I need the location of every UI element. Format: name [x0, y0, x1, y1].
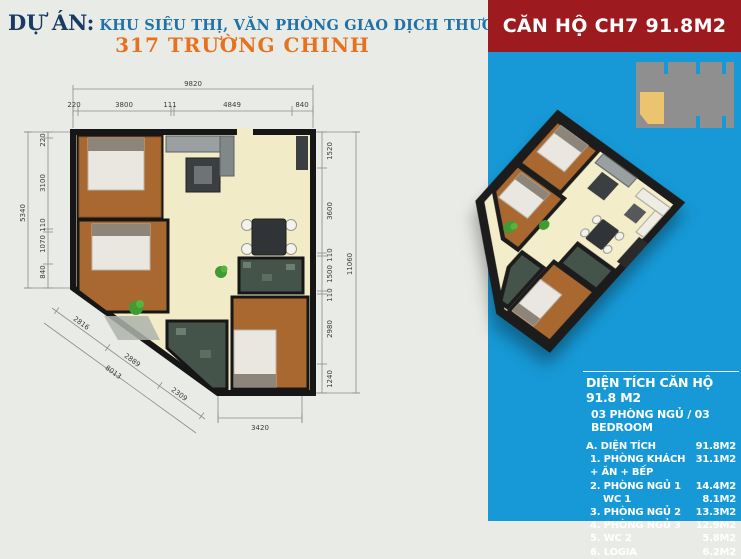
bedroom-2: [78, 220, 168, 312]
svg-text:4849: 4849: [223, 101, 241, 109]
svg-text:1500: 1500: [326, 265, 334, 283]
dim-left-overall: 5340: [19, 204, 27, 222]
table-row: 2. PHÒNG NGỦ 1 14.4M2: [586, 480, 736, 493]
svg-text:3100: 3100: [39, 174, 47, 192]
svg-text:3600: 3600: [326, 202, 334, 220]
dim-right-overall: 11060: [346, 253, 354, 275]
unit-title: CĂN HỘ CH7 91.8M2: [503, 15, 727, 37]
svg-text:2980: 2980: [326, 320, 334, 338]
bedroom-3: [232, 297, 308, 389]
svg-text:220: 220: [67, 101, 80, 109]
svg-text:1240: 1240: [326, 370, 334, 388]
table-row: 1. PHÒNG KHÁCH + ĂN + BẾP 31.1M2: [586, 453, 736, 479]
bedroom-1: [78, 136, 162, 218]
svg-text:110: 110: [326, 288, 334, 301]
svg-text:840: 840: [295, 101, 308, 109]
svg-text:1070: 1070: [39, 235, 47, 253]
area-table: DIỆN TÍCH CĂN HỘ 91.8 M2 03 PHÒNG NGỦ / …: [586, 375, 736, 559]
svg-text:111: 111: [163, 101, 176, 109]
svg-text:3800: 3800: [115, 101, 133, 109]
svg-text:3420: 3420: [251, 424, 269, 432]
project-header: DỰ ÁN: KHU SIÊU THỊ, VĂN PHÒNG GIAO DỊCH…: [8, 10, 486, 35]
svg-text:840: 840: [39, 265, 47, 278]
svg-text:1520: 1520: [326, 142, 334, 160]
svg-text:110: 110: [326, 248, 334, 261]
table-row: A. DIỆN TÍCH 91.8M2: [586, 440, 736, 453]
svg-text:220: 220: [39, 133, 47, 146]
tv-cabinet: [296, 136, 308, 170]
table-row: 5. WC 2 5.8M2: [586, 532, 736, 545]
table-row: WC 1 8.1M2: [586, 493, 736, 506]
dim-top-overall: 9820: [184, 80, 202, 88]
table-row: 4. PHÒNG NGỦ 3 12.9M2: [586, 519, 736, 532]
area-table-title: DIỆN TÍCH CĂN HỘ 91.8 M2: [586, 375, 736, 405]
project-address: 317 TRƯỜNG CHINH: [0, 33, 485, 57]
table-divider: [583, 371, 739, 372]
wc-1: [239, 258, 303, 293]
dim-diag-overall: 8013: [104, 364, 123, 381]
project-label: DỰ ÁN:: [8, 10, 94, 35]
building-key-plan: [636, 62, 734, 128]
entry-door: [237, 128, 253, 136]
unit-banner: CĂN HỘ CH7 91.8M2: [488, 0, 741, 52]
table-row: 3. PHÒNG NGỦ 2 13.3M2: [586, 506, 736, 519]
table-row: 6. LOGIA 6.2M2: [586, 546, 736, 559]
svg-text:110: 110: [39, 218, 47, 231]
floor-plan-2d: 9820 220 3800 111 4849 840 5340 220 3100…: [0, 78, 400, 446]
area-table-subtitle: 03 PHÒNG NGỦ / 03 BEDROOM: [591, 408, 736, 434]
